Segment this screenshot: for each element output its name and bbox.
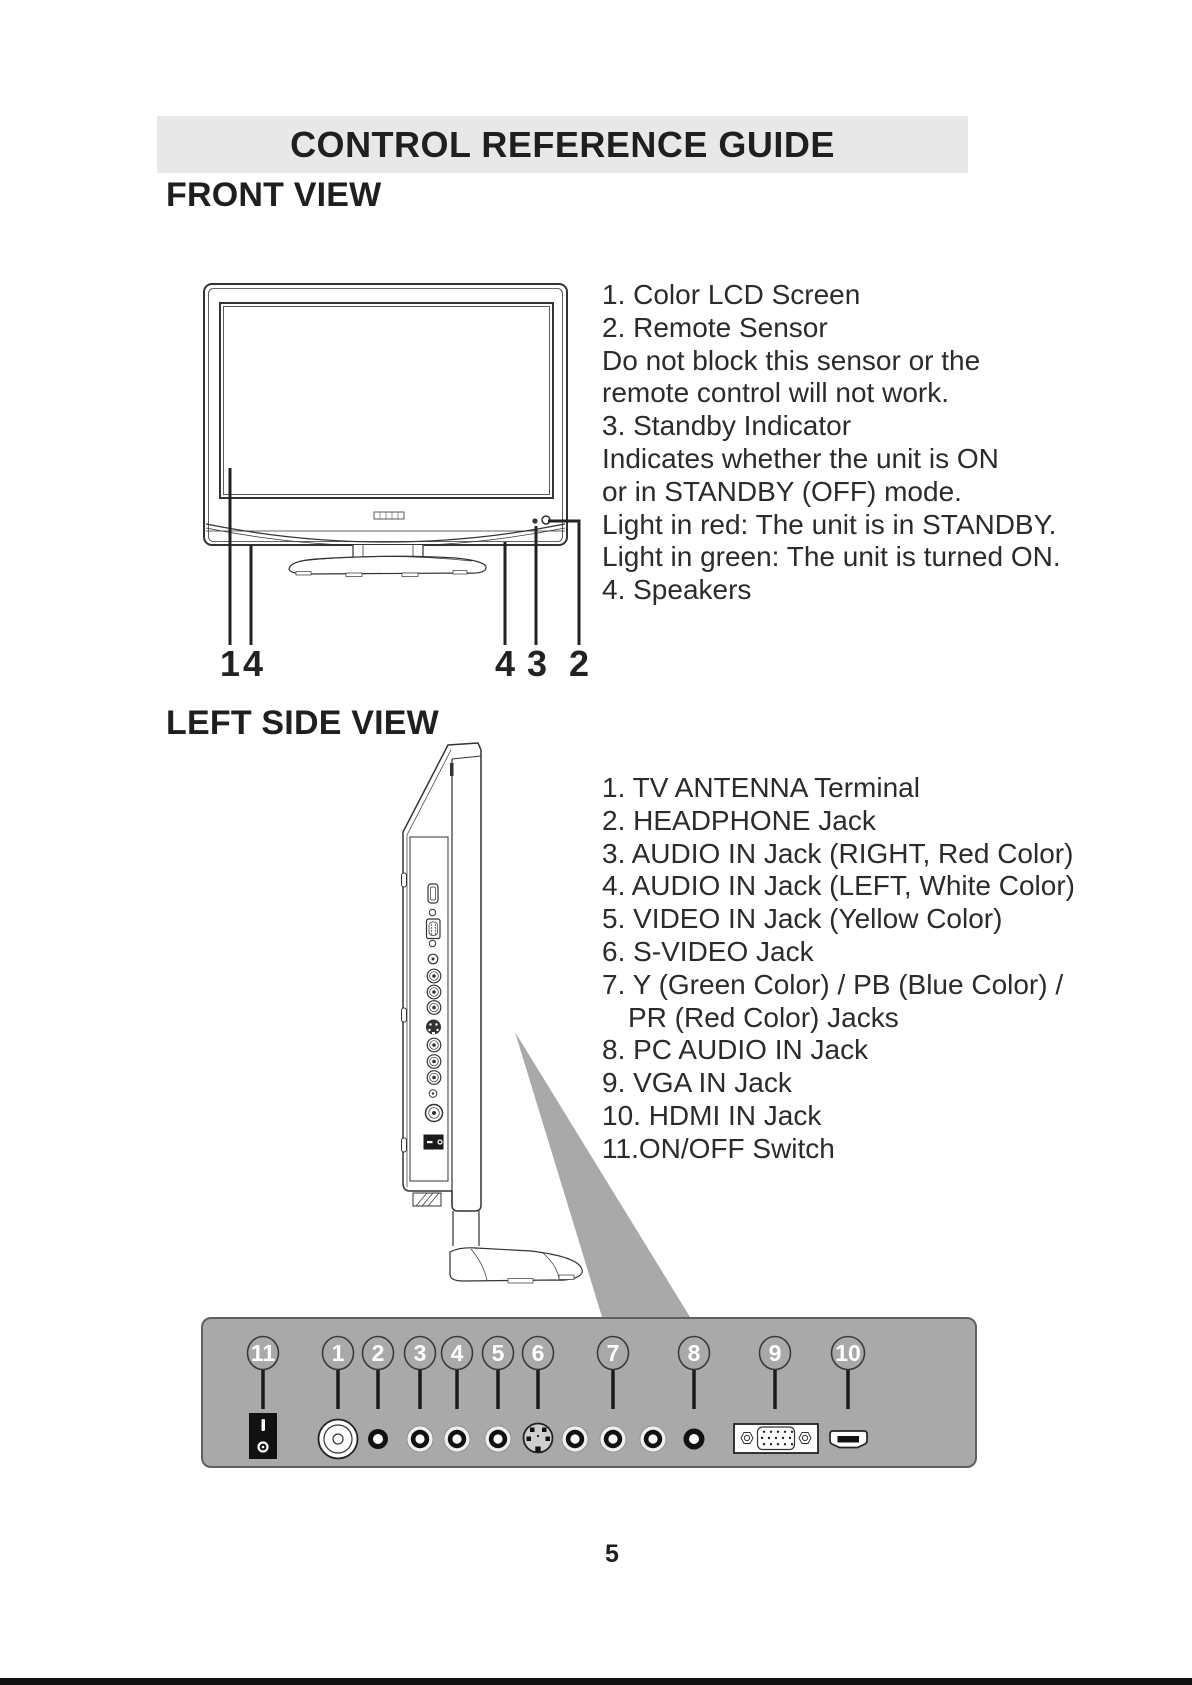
badge-10: 10 xyxy=(835,1340,861,1366)
panel-power-switch xyxy=(249,1413,277,1459)
screw xyxy=(429,909,435,915)
side-note-line: 4. AUDIO IN Jack (LEFT, White Color) xyxy=(602,870,1075,903)
antenna-jack xyxy=(426,1105,443,1122)
title-bar: CONTROL REFERENCE GUIDE xyxy=(157,116,968,173)
side-stand xyxy=(413,1193,582,1283)
front-view-heading: FRONT VIEW xyxy=(166,176,381,215)
front-note-line: Light in green: The unit is turned ON. xyxy=(602,541,1061,574)
bottom-rule xyxy=(0,1678,1192,1685)
hdmi-port xyxy=(428,884,438,903)
badge-1: 1 xyxy=(332,1340,345,1366)
front-note-line: Do not block this sensor or the xyxy=(602,345,1061,378)
vga-connector xyxy=(734,1424,818,1453)
front-note-line: Indicates whether the unit is ON xyxy=(602,443,1061,476)
front-note-line: 3. Standby Indicator xyxy=(602,410,1061,443)
side-note-line: 1. TV ANTENNA Terminal xyxy=(602,772,1075,805)
side-note-line: 2. HEADPHONE Jack xyxy=(602,805,1075,838)
badge-7: 7 xyxy=(607,1340,620,1366)
page-title: CONTROL REFERENCE GUIDE xyxy=(290,124,835,166)
audio-right-connector xyxy=(407,1426,433,1452)
pc-audio-connector xyxy=(684,1429,705,1450)
component-y-connector xyxy=(562,1426,588,1452)
headphone-jack xyxy=(428,954,438,964)
badge-11: 11 xyxy=(251,1340,276,1366)
front-callout-3: 3 xyxy=(527,643,547,680)
badge-2: 2 xyxy=(372,1340,385,1366)
front-note-line: 1. Color LCD Screen xyxy=(602,279,1061,312)
front-callout-numbers: 1 4 4 3 2 xyxy=(220,643,589,680)
side-note-line: 9. VGA IN Jack xyxy=(602,1067,1075,1100)
front-callout-1: 1 xyxy=(220,643,240,680)
front-callout-4l: 4 xyxy=(243,643,263,680)
front-callout-4r: 4 xyxy=(495,643,515,680)
front-view-diagram: 1 4 4 3 2 xyxy=(150,240,590,680)
side-note-line: PR (Red Color) Jacks xyxy=(602,1002,1075,1035)
s-video-jack xyxy=(426,1020,441,1035)
side-view-notes: 1. TV ANTENNA Terminal 2. HEADPHONE Jack… xyxy=(602,772,1075,1166)
front-view-notes: 1. Color LCD Screen 2. Remote Sensor Do … xyxy=(602,279,1061,607)
badge-8: 8 xyxy=(688,1340,701,1366)
badge-numbers: 11 1 2 3 4 5 6 7 8 9 10 xyxy=(251,1340,861,1366)
front-note-line: 2. Remote Sensor xyxy=(602,312,1061,345)
tv-front-outline xyxy=(204,284,567,545)
vga-port xyxy=(427,919,441,939)
front-note-line: remote control will not work. xyxy=(602,377,1061,410)
tv-stand xyxy=(289,545,486,577)
component-pb-connector xyxy=(600,1426,626,1452)
side-note-line: 6. S-VIDEO Jack xyxy=(602,936,1075,969)
badge-3: 3 xyxy=(414,1340,427,1366)
front-callout-2: 2 xyxy=(569,643,589,680)
rca-jacks-bottom xyxy=(427,1038,441,1084)
brand-logo xyxy=(374,512,404,519)
side-note-line: 3. AUDIO IN Jack (RIGHT, Red Color) xyxy=(602,838,1075,871)
power-switch xyxy=(424,1135,444,1150)
front-note-line: Light in red: The unit is in STANDBY. xyxy=(602,509,1061,542)
badge-4: 4 xyxy=(451,1340,464,1366)
badge-5: 5 xyxy=(492,1340,505,1366)
antenna-connector xyxy=(319,1420,358,1459)
component-pr-connector xyxy=(640,1426,666,1452)
side-note-line: 8. PC AUDIO IN Jack xyxy=(602,1034,1075,1067)
front-note-line: or in STANDBY (OFF) mode. xyxy=(602,476,1061,509)
side-note-line: 5. VIDEO IN Jack (Yellow Color) xyxy=(602,903,1075,936)
screw xyxy=(429,940,435,946)
connector-panel: 11 1 2 3 4 5 6 7 8 9 10 xyxy=(201,1317,977,1468)
side-note-line: 7. Y (Green Color) / PB (Blue Color) / xyxy=(602,969,1075,1002)
side-note-line: 10. HDMI IN Jack xyxy=(602,1100,1075,1133)
rca-jacks-top xyxy=(427,969,441,1014)
headphone-connector xyxy=(368,1429,388,1449)
page-number: 5 xyxy=(0,1540,1192,1569)
badge-9: 9 xyxy=(769,1340,782,1366)
badge-leader-lines xyxy=(263,1370,848,1409)
hdmi-connector xyxy=(830,1431,867,1448)
s-video-connector xyxy=(524,1424,553,1453)
front-note-line: 4. Speakers xyxy=(602,574,1061,607)
video-in-connector xyxy=(485,1426,511,1452)
manual-page: CONTROL REFERENCE GUIDE FRONT VIEW xyxy=(0,0,1192,1685)
audio-left-connector xyxy=(444,1426,470,1452)
side-note-line: 11.ON/OFF Switch xyxy=(602,1133,1075,1166)
badge-6: 6 xyxy=(532,1340,545,1366)
connector-panel-drawing: 11 1 2 3 4 5 6 7 8 9 10 xyxy=(201,1317,977,1468)
